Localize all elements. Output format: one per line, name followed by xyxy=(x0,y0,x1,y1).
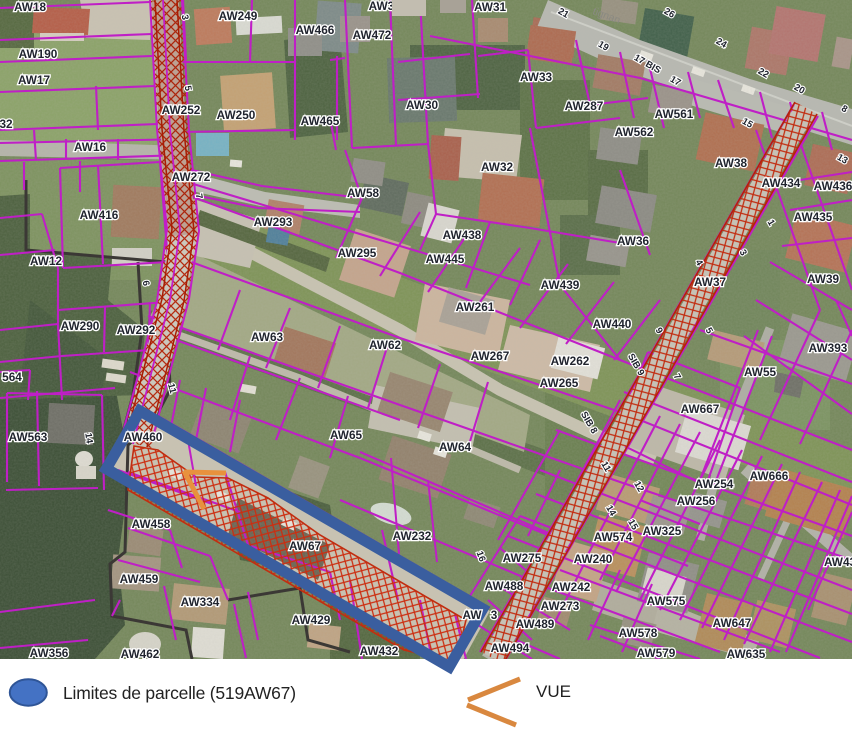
svg-text:AW647: AW647 xyxy=(713,616,752,630)
svg-text:AW43: AW43 xyxy=(824,555,852,569)
svg-text:AW256: AW256 xyxy=(677,494,716,508)
svg-text:AW65: AW65 xyxy=(330,428,363,442)
svg-text:Limites de parcelle (519AW67): Limites de parcelle (519AW67) xyxy=(63,683,296,703)
svg-text:AW272: AW272 xyxy=(172,170,211,184)
svg-text:AW64: AW64 xyxy=(439,440,472,454)
svg-text:AW440: AW440 xyxy=(593,317,632,331)
svg-text:AW275: AW275 xyxy=(503,551,542,565)
svg-text:AW356: AW356 xyxy=(30,646,69,660)
svg-text:AW334: AW334 xyxy=(181,595,220,609)
svg-text:AW562: AW562 xyxy=(615,125,654,139)
svg-text:AW293: AW293 xyxy=(254,215,293,229)
svg-text:AW465: AW465 xyxy=(301,114,340,128)
svg-text:AW438: AW438 xyxy=(443,228,482,242)
svg-text:32: 32 xyxy=(0,117,13,131)
svg-text:AW393: AW393 xyxy=(809,341,848,355)
svg-text:AW429: AW429 xyxy=(292,613,331,627)
svg-text:AW55: AW55 xyxy=(744,365,777,379)
svg-text:AW295: AW295 xyxy=(338,246,377,260)
svg-text:AW16: AW16 xyxy=(74,140,107,154)
svg-text:AW232: AW232 xyxy=(393,529,432,543)
svg-text:AW12: AW12 xyxy=(30,254,63,268)
svg-text:AW267: AW267 xyxy=(471,349,510,363)
svg-text:AW439: AW439 xyxy=(541,278,580,292)
svg-text:AW667: AW667 xyxy=(681,402,720,416)
svg-text:AW435: AW435 xyxy=(794,210,833,224)
svg-text:AW635: AW635 xyxy=(727,647,766,661)
svg-text:AW416: AW416 xyxy=(80,208,119,222)
svg-text:AW: AW xyxy=(462,608,482,622)
svg-text:AW578: AW578 xyxy=(619,626,658,640)
svg-text:AW39: AW39 xyxy=(807,272,840,286)
svg-text:AW254: AW254 xyxy=(695,477,734,491)
svg-text:AW249: AW249 xyxy=(219,9,258,23)
svg-text:AW458: AW458 xyxy=(132,517,171,531)
svg-text:AW17: AW17 xyxy=(18,73,51,87)
svg-text:AW33: AW33 xyxy=(520,70,553,84)
svg-text:AW31: AW31 xyxy=(474,0,507,14)
svg-text:AW261: AW261 xyxy=(456,300,495,314)
svg-text:AW190: AW190 xyxy=(19,47,58,61)
svg-text:AW242: AW242 xyxy=(552,580,591,594)
svg-text:AW265: AW265 xyxy=(540,376,579,390)
svg-text:AW445: AW445 xyxy=(426,252,465,266)
svg-text:VUE: VUE xyxy=(536,682,571,701)
svg-text:AW579: AW579 xyxy=(637,646,676,660)
svg-text:AW292: AW292 xyxy=(117,323,156,337)
svg-text:AW30: AW30 xyxy=(406,98,439,112)
svg-text:AW58: AW58 xyxy=(347,186,380,200)
svg-text:AW252: AW252 xyxy=(162,103,201,117)
svg-text:AW563: AW563 xyxy=(9,430,48,444)
svg-text:AW666: AW666 xyxy=(750,469,789,483)
svg-text:AW67: AW67 xyxy=(289,539,322,553)
svg-text:AW325: AW325 xyxy=(643,524,682,538)
svg-text:AW63: AW63 xyxy=(251,330,284,344)
svg-text:AW287: AW287 xyxy=(565,99,604,113)
svg-text:AW436: AW436 xyxy=(814,179,852,193)
svg-text:AW32: AW32 xyxy=(481,160,514,174)
svg-text:AW262: AW262 xyxy=(551,354,590,368)
svg-text:AW18: AW18 xyxy=(14,0,47,14)
svg-text:AW432: AW432 xyxy=(360,644,399,658)
svg-text:AW574: AW574 xyxy=(594,530,633,544)
svg-text:AW466: AW466 xyxy=(296,23,335,37)
svg-text:AW472: AW472 xyxy=(353,28,392,42)
svg-text:AW62: AW62 xyxy=(369,338,402,352)
svg-text:AW561: AW561 xyxy=(655,107,694,121)
svg-text:AW489: AW489 xyxy=(516,617,555,631)
svg-text:3: 3 xyxy=(491,608,498,622)
svg-text:AW36: AW36 xyxy=(617,234,650,248)
svg-text:AW488: AW488 xyxy=(485,579,524,593)
svg-text:AW37: AW37 xyxy=(694,275,727,289)
svg-text:AW434: AW434 xyxy=(762,176,801,190)
svg-text:564: 564 xyxy=(2,370,22,384)
svg-text:AW460: AW460 xyxy=(124,430,163,444)
svg-text:AW290: AW290 xyxy=(61,319,100,333)
svg-text:AW459: AW459 xyxy=(120,572,159,586)
svg-text:AW250: AW250 xyxy=(217,108,256,122)
svg-text:AW494: AW494 xyxy=(491,641,530,655)
svg-text:AW240: AW240 xyxy=(574,552,613,566)
svg-text:AW38: AW38 xyxy=(715,156,748,170)
svg-text:AW273: AW273 xyxy=(541,599,580,613)
svg-text:AW575: AW575 xyxy=(647,594,686,608)
svg-text:AW462: AW462 xyxy=(121,647,160,661)
